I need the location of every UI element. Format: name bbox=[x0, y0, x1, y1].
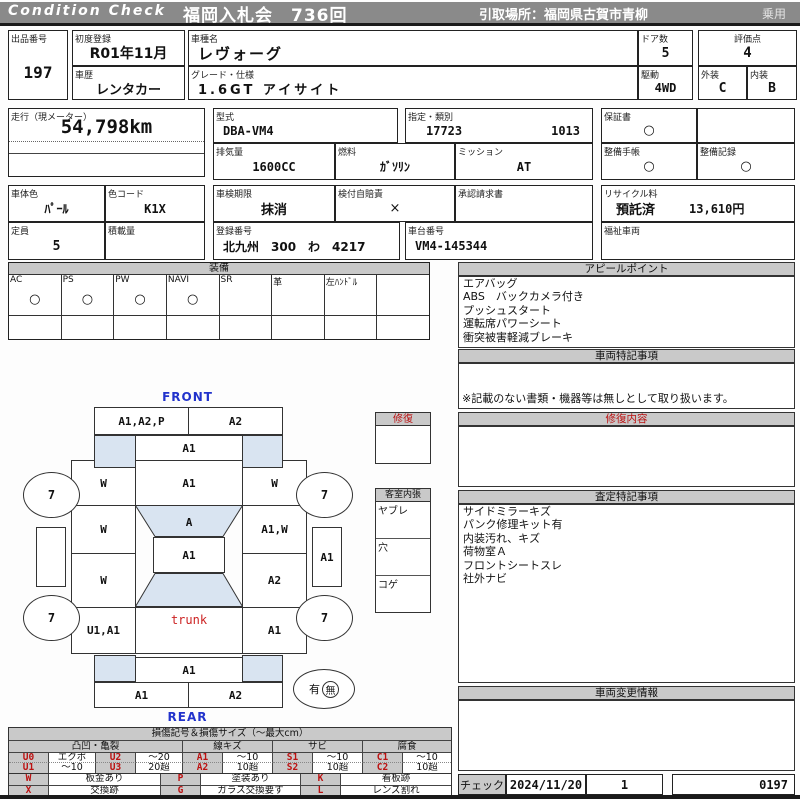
welfare-vehicle-label: 福祉車両 bbox=[604, 224, 640, 237]
equipment-empty-cell bbox=[9, 316, 62, 339]
vehicle-notes-disclaimer: ※記載のない書類・機器等は無しとして取り扱います。 bbox=[462, 390, 734, 406]
windshield-mark: A bbox=[186, 516, 193, 529]
equipment-cell-leather: 革 bbox=[272, 275, 325, 315]
registration-number-label: 登録番号 bbox=[216, 224, 252, 237]
recycle-fee-cell: リサイクル料 預託済 13,610円 bbox=[601, 185, 795, 222]
equipment-value-lhd bbox=[325, 284, 377, 315]
model-name-label: 車種名 bbox=[191, 32, 218, 45]
drive-cell: 駆動 4WD bbox=[638, 66, 693, 100]
repair-mini-title: 修復 bbox=[376, 413, 430, 426]
equipment-value-navi: ○ bbox=[167, 284, 219, 315]
history-cell: 車歴 レンタカー bbox=[72, 66, 185, 100]
check-label-cell: チェック bbox=[458, 774, 506, 795]
body-color-label: 車体色 bbox=[11, 187, 38, 200]
panel-right-rear-door: A2 bbox=[242, 553, 307, 608]
spare-yes-label: 有 bbox=[309, 681, 320, 697]
diagram-front-label: FRONT bbox=[140, 390, 235, 404]
grade-cell: グレード・仕様 1.6GT アイサイト bbox=[188, 66, 638, 100]
assessment-item: 内装汚れ、キズ bbox=[459, 532, 794, 545]
maintenance-book-cell: 整備手帳 ○ bbox=[601, 143, 697, 180]
inspection-expiry-label: 車検期限 bbox=[216, 187, 252, 200]
score-label: 評価点 bbox=[699, 32, 796, 45]
equipment-cell-navi: NAVI○ bbox=[167, 275, 220, 315]
displacement-cell: 排気量 1600CC bbox=[213, 143, 335, 180]
interior-lining-box: 客室内張 ヤブレ 穴 コゲ bbox=[375, 488, 431, 613]
legend-group-dents: 凸凹・亀裂 bbox=[9, 740, 183, 752]
legend-code: U2 bbox=[96, 752, 136, 763]
equipment-empty-cell bbox=[325, 316, 378, 339]
warranty-label: 保証書 bbox=[604, 110, 631, 123]
legend-value: ～20 bbox=[136, 752, 183, 763]
body-color-cell: 車体色 ﾊﾟｰﾙ bbox=[8, 185, 105, 222]
damage-legend-row-1: U0 エクボ U2 ～20 A1 ～10 S1 ～10 C1 ～10 bbox=[9, 752, 451, 763]
class-designation-a: 17723 bbox=[426, 124, 462, 138]
change-info-panel bbox=[458, 700, 795, 771]
exterior-grade-label: 外装 bbox=[701, 68, 719, 81]
spare-no-label-circled: 無 bbox=[322, 681, 339, 698]
legend-mark-code: W bbox=[9, 774, 49, 785]
equipment-empty-cell bbox=[114, 316, 167, 339]
fuel-label: 燃料 bbox=[338, 145, 356, 158]
equipment-empty-cell bbox=[220, 316, 273, 339]
damage-legend-table: 損傷記号＆損傷サイズ（～最大cm） 凸凹・亀裂 線キズ サビ 腐食 U0 エクボ… bbox=[8, 727, 452, 775]
panel-right-front-door: A1,W bbox=[242, 505, 307, 554]
history-label: 車歴 bbox=[75, 68, 93, 81]
panel-left-front-door: W bbox=[71, 505, 136, 554]
warranty-cell: 保証書 ○ bbox=[601, 108, 697, 143]
auction-title: 福岡入札会 736回 bbox=[183, 1, 348, 26]
appeal-item: エアバッグ bbox=[459, 277, 794, 290]
approval-request-cell: 承認請求書 bbox=[455, 185, 593, 222]
interior-grade-label: 内装 bbox=[750, 68, 768, 81]
mileage-divider-dotted bbox=[9, 141, 204, 142]
panel-rear-bumper-left: A1 bbox=[94, 682, 189, 708]
damage-legend-title: 損傷記号＆損傷サイズ（～最大cm） bbox=[9, 728, 451, 740]
equipment-empty-row bbox=[9, 315, 429, 339]
lot-number-label: 出品番号 bbox=[11, 32, 47, 45]
chassis-number-cell: 車台番号 VM4-145344 bbox=[405, 222, 593, 260]
model-code-cell: 型式 DBA-VM4 bbox=[213, 108, 398, 143]
equipment-table: 装備 AC○ PS○ PW○ NAVI○ SR 革 左ﾊﾝﾄﾞﾙ bbox=[8, 262, 430, 340]
equipment-value-ps: ○ bbox=[62, 284, 114, 315]
equipment-value-extra bbox=[377, 284, 429, 315]
equipment-empty-cell bbox=[377, 316, 429, 339]
model-name-value: レヴォーグ bbox=[189, 41, 637, 65]
grade-label: グレード・仕様 bbox=[191, 68, 254, 81]
panel-rear-edge: A1 bbox=[135, 657, 243, 683]
load-capacity-label: 積載量 bbox=[108, 224, 135, 237]
vehicle-category: 乗用 bbox=[762, 5, 786, 22]
change-info-header: 車両変更情報 bbox=[458, 686, 795, 700]
interior-row-hole-label: 穴 bbox=[378, 539, 388, 554]
maintenance-book-label: 整備手帳 bbox=[604, 145, 640, 158]
panel-rear-corner-right bbox=[242, 655, 283, 682]
equipment-cell-pw: PW○ bbox=[114, 275, 167, 315]
tire-front-right: 7 bbox=[296, 472, 353, 518]
equipment-empty-cell bbox=[272, 316, 325, 339]
panel-front-bumper-left: A1,A2,P bbox=[94, 407, 189, 435]
assessment-item: 社外ナビ bbox=[459, 572, 794, 585]
legend-mark-code: K bbox=[301, 774, 341, 785]
legend-code: S1 bbox=[273, 752, 313, 763]
insurance-cell: 検付自賠責 × bbox=[335, 185, 455, 222]
displacement-label: 排気量 bbox=[216, 145, 243, 158]
diagram-rear-label: REAR bbox=[140, 710, 235, 724]
welfare-vehicle-cell: 福祉車両 bbox=[601, 222, 795, 260]
interior-row-hole: 穴 bbox=[376, 539, 430, 576]
maintenance-record-cell: 整備記録 ○ bbox=[697, 143, 795, 180]
class-designation-label: 指定・類別 bbox=[408, 110, 453, 123]
legend-group-rust: サビ bbox=[273, 740, 363, 752]
assessment-item: 荷物室Ａ bbox=[459, 545, 794, 558]
equipment-cell-ac: AC○ bbox=[9, 275, 62, 315]
panel-front-edge: A1 bbox=[135, 435, 243, 461]
panel-rear-bumper-right: A2 bbox=[188, 682, 283, 708]
first-registration-label: 初度登録 bbox=[75, 32, 111, 45]
repair-content-panel bbox=[458, 426, 795, 487]
equipment-cell-ps: PS○ bbox=[62, 275, 115, 315]
panel-left-rear-door: W bbox=[71, 553, 136, 608]
legend-mark-value: 板金あり bbox=[49, 774, 161, 785]
recycle-amount: 13,610円 bbox=[689, 200, 744, 217]
panel-front-corner-left bbox=[94, 435, 136, 468]
mileage-cell: 走行（現メーター） 54,798km bbox=[8, 108, 205, 177]
repair-content-header: 修復内容 bbox=[458, 412, 795, 426]
tire-rear-left: 7 bbox=[23, 595, 80, 641]
equipment-empty-cell bbox=[167, 316, 220, 339]
legend-code: U0 bbox=[9, 752, 49, 763]
appeal-item: ABS バックカメラ付き bbox=[459, 290, 794, 303]
panel-windshield: A bbox=[135, 505, 243, 537]
assessment-item: サイドミラーキズ bbox=[459, 505, 794, 518]
legend-group-corrosion: 腐食 bbox=[363, 740, 451, 752]
interior-lining-title: 客室内張 bbox=[376, 489, 430, 502]
class-designation-cell: 指定・類別 17723 1013 bbox=[405, 108, 593, 143]
mileage-label: 走行（現メーター） bbox=[11, 110, 92, 123]
equipment-value-ac: ○ bbox=[9, 284, 61, 315]
transmission-cell: ミッション AT bbox=[455, 143, 593, 180]
exterior-grade-cell: 外装 C bbox=[698, 66, 747, 100]
equipment-title: 装備 bbox=[9, 263, 429, 275]
equipment-cell-extra bbox=[377, 275, 429, 315]
legend-value: ～10 bbox=[403, 752, 451, 763]
grade-value: 1.6GT アイサイト bbox=[189, 77, 637, 99]
auction-condition-sheet: Condition Check 福岡入札会 736回 引取場所：福岡県古賀市青柳… bbox=[0, 0, 800, 800]
transmission-label: ミッション bbox=[458, 145, 503, 158]
check-date-cell: 2024/11/20 bbox=[506, 774, 586, 795]
color-code-cell: 色コード K1X bbox=[105, 185, 205, 222]
appeal-item: プッシュスタート bbox=[459, 304, 794, 317]
tire-rear-right: 7 bbox=[296, 595, 353, 641]
model-code-value: DBA-VM4 bbox=[214, 119, 397, 142]
bottom-border-line bbox=[0, 795, 800, 799]
assessment-notes-header: 査定特記事項 bbox=[458, 490, 795, 504]
panel-left-sill bbox=[36, 527, 66, 587]
appeal-item: 運転席パワーシート bbox=[459, 317, 794, 330]
interior-grade-cell: 内装 B bbox=[747, 66, 797, 100]
doors-label: ドア数 bbox=[641, 32, 668, 45]
legend-group-scratches: 線キズ bbox=[183, 740, 273, 752]
header-divider bbox=[0, 23, 800, 26]
interior-row-burn-label: コゲ bbox=[378, 576, 398, 591]
brand-title: Condition Check bbox=[8, 3, 166, 19]
legend-mark-code: P bbox=[161, 774, 201, 785]
inspection-expiry-cell: 車検期限 抹消 bbox=[213, 185, 335, 222]
insurance-label: 検付自賠責 bbox=[338, 187, 383, 200]
model-name-cell: 車種名 レヴォーグ bbox=[188, 30, 638, 66]
vehicle-notes-header: 車両特記事項 bbox=[458, 349, 795, 363]
assessment-item: フロントシートスレ bbox=[459, 559, 794, 572]
appeal-points-panel: エアバッグ ABS バックカメラ付き プッシュスタート 運転席パワーシート 衝突… bbox=[458, 276, 795, 348]
interior-row-tear: ヤブレ bbox=[376, 502, 430, 539]
tire-front-left: 7 bbox=[23, 472, 80, 518]
legend-value: エクボ bbox=[49, 752, 96, 763]
load-capacity-cell: 積載量 bbox=[105, 222, 205, 260]
panel-right-sill: A1 bbox=[312, 527, 342, 587]
interior-row-tear-label: ヤブレ bbox=[378, 502, 408, 517]
legend-value: ～10 bbox=[223, 752, 273, 763]
drive-label: 駆動 bbox=[641, 68, 659, 81]
color-code-label: 色コード bbox=[108, 187, 144, 200]
equipment-empty-cell bbox=[62, 316, 115, 339]
panel-front-bumper-right: A2 bbox=[188, 407, 283, 435]
pickup-location: 引取場所：福岡県古賀市青柳 bbox=[479, 4, 648, 23]
fuel-cell: 燃料 ｶﾞｿﾘﾝ bbox=[335, 143, 455, 180]
assessment-notes-panel: サイドミラーキズ パンク修理キット有 内装汚れ、キズ 荷物室Ａ フロントシートス… bbox=[458, 504, 795, 683]
equipment-cell-lhd: 左ﾊﾝﾄﾞﾙ bbox=[325, 275, 378, 315]
legend-mark-value: 塗装あり bbox=[201, 774, 301, 785]
panel-rear-corner-left bbox=[94, 655, 136, 682]
chassis-number-label: 車台番号 bbox=[408, 224, 444, 237]
equipment-cell-sr: SR bbox=[220, 275, 273, 315]
recycle-status: 預託済 bbox=[616, 199, 655, 218]
appeal-item: 衝突被害軽減ブレーキ bbox=[459, 331, 794, 344]
legend-value: ～10 bbox=[313, 752, 363, 763]
panel-roof: A1 bbox=[153, 537, 225, 573]
model-code-label: 型式 bbox=[216, 110, 234, 123]
lot-number-cell: 出品番号 197 bbox=[8, 30, 68, 100]
mileage-divider-solid bbox=[9, 153, 204, 154]
panel-front-corner-right bbox=[242, 435, 283, 468]
capacity-label: 定員 bbox=[11, 224, 29, 237]
equipment-value-leather bbox=[272, 284, 324, 315]
legend-code: C1 bbox=[363, 752, 403, 763]
score-cell: 評価点 4 bbox=[698, 30, 797, 66]
lot-number-value: 197 bbox=[9, 45, 67, 99]
panel-left-rear-fender: U1,A1 bbox=[71, 607, 136, 654]
repair-mini-box: 修復 bbox=[375, 412, 431, 464]
equipment-value-pw: ○ bbox=[114, 284, 166, 315]
spare-tire-indicator: 有 無 bbox=[293, 669, 355, 709]
warranty-adjacent-empty-cell bbox=[697, 108, 795, 143]
panel-rear-window bbox=[135, 573, 243, 607]
check-count-cell: 1 bbox=[586, 774, 663, 795]
approval-request-label: 承認請求書 bbox=[458, 187, 503, 200]
damage-marks-row-1: W 板金あり P 塗装あり K 看板跡 bbox=[9, 774, 451, 785]
panel-hood: A1 bbox=[135, 460, 243, 506]
damage-marks-table: W 板金あり P 塗装あり K 看板跡 X 交換跡 G ガラス交換要す L レン… bbox=[8, 773, 452, 797]
check-number-cell: 0197 bbox=[672, 774, 795, 795]
equipment-value-sr bbox=[220, 284, 272, 315]
capacity-cell: 定員 5 bbox=[8, 222, 105, 260]
interior-row-burn: コゲ bbox=[376, 576, 430, 612]
legend-code: A1 bbox=[183, 752, 223, 763]
appeal-points-header: アピールポイント bbox=[458, 262, 795, 276]
maintenance-record-label: 整備記録 bbox=[700, 145, 736, 158]
equipment-row: AC○ PS○ PW○ NAVI○ SR 革 左ﾊﾝﾄﾞﾙ bbox=[9, 275, 429, 315]
registration-number-cell: 登録番号 北九州 300 わ 4217 bbox=[213, 222, 400, 260]
assessment-item: パンク修理キット有 bbox=[459, 518, 794, 531]
vehicle-notes-panel: ※記載のない書類・機器等は無しとして取り扱います。 bbox=[458, 363, 795, 409]
class-designation-b: 1013 bbox=[551, 124, 580, 138]
legend-mark-value: 看板跡 bbox=[341, 774, 451, 785]
doors-cell: ドア数 5 bbox=[638, 30, 693, 66]
first-registration-cell: 初度登録 R01年11月 bbox=[72, 30, 185, 66]
recycle-fee-label: リサイクル料 bbox=[604, 187, 658, 200]
damage-legend-groups: 凸凹・亀裂 線キズ サビ 腐食 bbox=[9, 740, 451, 752]
rear-window-shape bbox=[136, 574, 243, 607]
panel-trunk: trunk bbox=[135, 607, 243, 654]
